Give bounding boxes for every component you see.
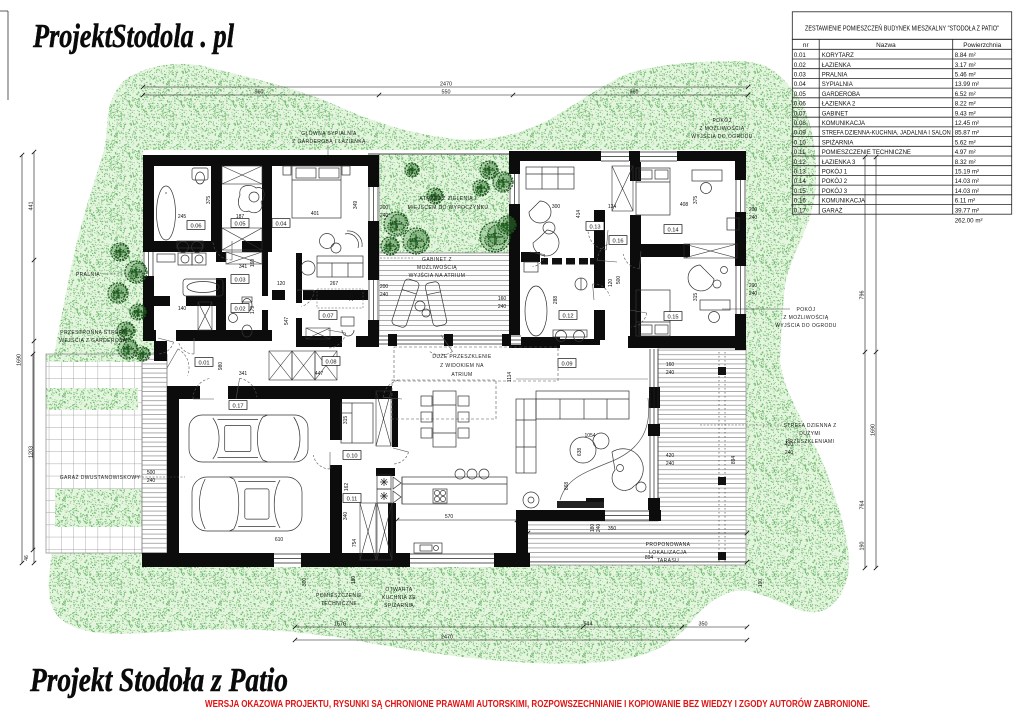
- svg-text:288: 288: [553, 296, 559, 305]
- svg-text:240: 240: [498, 304, 507, 310]
- svg-text:PRALNIA: PRALNIA: [76, 272, 100, 278]
- svg-text:0.10: 0.10: [794, 139, 807, 146]
- svg-text:85.87 m²: 85.87 m²: [955, 130, 979, 137]
- svg-text:638: 638: [577, 448, 583, 457]
- svg-text:500: 500: [616, 276, 622, 285]
- svg-text:0.01: 0.01: [794, 52, 807, 59]
- svg-text:ŁAZIENKA 3: ŁAZIENKA 3: [822, 160, 856, 166]
- svg-text:240: 240: [666, 461, 675, 467]
- svg-text:13.99 m²: 13.99 m²: [955, 81, 979, 88]
- svg-text:ProjektStodola . pl: ProjektStodola . pl: [32, 18, 234, 55]
- svg-text:14.03 m²: 14.03 m²: [955, 188, 979, 195]
- svg-text:2470: 2470: [441, 635, 453, 641]
- svg-text:ŁAZIENKA 2: ŁAZIENKA 2: [822, 102, 856, 108]
- svg-text:POMIESZCZENIE: POMIESZCZENIE: [316, 593, 362, 599]
- svg-text:300: 300: [552, 204, 561, 210]
- svg-text:200: 200: [380, 284, 389, 290]
- svg-text:0.05: 0.05: [234, 221, 245, 227]
- svg-text:267: 267: [330, 281, 339, 287]
- svg-text:8.32 m²: 8.32 m²: [955, 159, 976, 166]
- svg-text:1054: 1054: [584, 433, 595, 439]
- svg-text:DUŻE PRZESZKLENIE: DUŻE PRZESZKLENIE: [432, 353, 492, 360]
- svg-text:0.17: 0.17: [794, 207, 807, 214]
- svg-text:754: 754: [352, 539, 358, 548]
- svg-text:9.43 m²: 9.43 m²: [955, 110, 976, 117]
- svg-text:ATRIUM Z ZIELENIĄ I: ATRIUM Z ZIELENIĄ I: [419, 196, 476, 202]
- svg-text:TECHNICZNE: TECHNICZNE: [321, 601, 357, 607]
- svg-text:PRALNIA: PRALNIA: [822, 73, 848, 79]
- svg-text:MIEJSCEM DO WYPOCZYNKU: MIEJSCEM DO WYPOCZYNKU: [408, 205, 489, 211]
- svg-text:GARAŻ: GARAŻ: [822, 207, 843, 214]
- svg-text:408: 408: [680, 202, 689, 208]
- svg-text:187: 187: [236, 214, 245, 220]
- svg-text:160: 160: [498, 296, 507, 302]
- svg-text:0.04: 0.04: [794, 81, 807, 88]
- svg-text:SPIŻARNIA: SPIŻARNIA: [822, 139, 854, 146]
- svg-text:180: 180: [351, 576, 357, 585]
- svg-text:0.15: 0.15: [794, 188, 807, 195]
- svg-text:Z MOŻLIWOŚCIĄ: Z MOŻLIWOŚCIĄ: [783, 313, 828, 321]
- svg-text:0.01: 0.01: [198, 360, 209, 366]
- svg-text:414: 414: [576, 210, 582, 219]
- svg-text:KUCHNIA ZE: KUCHNIA ZE: [382, 595, 416, 601]
- svg-text:14.03 m²: 14.03 m²: [955, 178, 979, 185]
- svg-text:POMIESZCZENIE TECHNICZNE: POMIESZCZENIE TECHNICZNE: [822, 150, 911, 156]
- svg-text:WYJŚCIA NA ATRIUM: WYJŚCIA NA ATRIUM: [409, 271, 466, 279]
- svg-text:0.04: 0.04: [275, 221, 286, 227]
- svg-text:441: 441: [29, 202, 35, 211]
- svg-text:12.45 m²: 12.45 m²: [955, 120, 979, 127]
- svg-text:WERSJA OKAZOWA PROJEKTU, RYSUN: WERSJA OKAZOWA PROJEKTU, RYSUNKI SĄ CHRO…: [205, 697, 870, 710]
- svg-text:120: 120: [277, 281, 286, 287]
- svg-text:6.11 m²: 6.11 m²: [955, 198, 976, 205]
- svg-text:8.84 m²: 8.84 m²: [955, 52, 976, 59]
- svg-text:1114: 1114: [507, 372, 513, 383]
- svg-text:894: 894: [731, 456, 737, 465]
- svg-text:POKÓJ 3: POKÓJ 3: [822, 188, 848, 195]
- svg-text:350: 350: [608, 526, 617, 532]
- svg-text:401: 401: [311, 211, 320, 217]
- svg-text:0.07: 0.07: [794, 110, 807, 117]
- svg-text:0.15: 0.15: [667, 314, 678, 320]
- svg-text:WYJŚCIA DO OGRODU: WYJŚCIA DO OGRODU: [691, 132, 753, 140]
- svg-text:570: 570: [445, 514, 454, 520]
- svg-text:4.97 m²: 4.97 m²: [955, 149, 976, 156]
- svg-text:200: 200: [380, 205, 389, 211]
- svg-text:0.17: 0.17: [232, 403, 243, 409]
- svg-text:KOMUNIKACJA: KOMUNIKACJA: [822, 199, 865, 205]
- svg-text:SYPIALNIA: SYPIALNIA: [822, 82, 853, 88]
- svg-text:GARDEROBA: GARDEROBA: [822, 92, 860, 98]
- svg-text:PRZESTRONNA STREFA: PRZESTRONNA STREFA: [60, 330, 126, 336]
- svg-text:160: 160: [666, 362, 675, 368]
- svg-text:STREFA DZIENNA Z: STREFA DZIENNA Z: [783, 423, 836, 429]
- svg-text:350: 350: [699, 622, 708, 628]
- svg-text:550: 550: [442, 90, 451, 96]
- svg-text:0.14: 0.14: [667, 227, 678, 233]
- svg-text:39.77 m²: 39.77 m²: [955, 207, 979, 214]
- svg-text:0.11: 0.11: [347, 496, 358, 502]
- svg-text:0.03: 0.03: [234, 277, 245, 283]
- svg-text:LOKALIZACJA: LOKALIZACJA: [649, 550, 687, 556]
- svg-text:2470: 2470: [440, 82, 452, 88]
- svg-text:420: 420: [666, 453, 675, 459]
- svg-text:262.00 m²: 262.00 m²: [955, 218, 983, 225]
- svg-text:0.12: 0.12: [562, 313, 573, 319]
- svg-text:375: 375: [693, 196, 699, 205]
- svg-text:Powierzchnia: Powierzchnia: [963, 42, 1001, 49]
- svg-text:Nazwa: Nazwa: [876, 42, 896, 49]
- svg-text:764: 764: [860, 501, 866, 510]
- svg-text:0.02: 0.02: [794, 62, 807, 69]
- svg-text:0.10: 0.10: [346, 453, 357, 459]
- svg-text:POKÓJ: POKÓJ: [713, 117, 732, 124]
- svg-text:315: 315: [693, 293, 699, 302]
- svg-text:980: 980: [218, 362, 224, 371]
- svg-text:544: 544: [584, 622, 593, 628]
- svg-text:1203: 1203: [29, 446, 35, 458]
- svg-text:WEJŚCIA Z GARDEROBĄ: WEJŚCIA Z GARDEROBĄ: [59, 336, 127, 344]
- svg-text:WYJŚCIA DO OGRODU: WYJŚCIA DO OGRODU: [775, 321, 837, 329]
- svg-text:46: 46: [24, 555, 30, 561]
- svg-text:5.62 m²: 5.62 m²: [955, 139, 976, 146]
- svg-text:KORYTARZ: KORYTARZ: [822, 53, 854, 59]
- svg-text:610: 610: [275, 537, 284, 543]
- svg-text:0.06: 0.06: [794, 101, 807, 108]
- svg-text:960: 960: [630, 90, 639, 96]
- svg-text:375: 375: [206, 196, 212, 205]
- svg-text:Z WIDOKIEM NA: Z WIDOKIEM NA: [440, 363, 484, 369]
- svg-text:341: 341: [239, 371, 248, 377]
- svg-text:240: 240: [147, 478, 156, 484]
- svg-text:315: 315: [343, 416, 349, 425]
- svg-text:0.13: 0.13: [794, 169, 807, 176]
- svg-text:500: 500: [147, 470, 156, 476]
- svg-text:ZESTAWIENIE POMIESZCZEŃ BUDYNE: ZESTAWIENIE POMIESZCZEŃ BUDYNEK MIESZKAL…: [805, 24, 999, 33]
- svg-text:134: 134: [608, 204, 617, 210]
- svg-text:nr: nr: [803, 42, 810, 49]
- svg-text:179: 179: [250, 306, 256, 315]
- svg-text:GABINET: GABINET: [822, 111, 849, 117]
- svg-text:796: 796: [860, 291, 866, 300]
- svg-text:200: 200: [749, 207, 758, 213]
- svg-text:Z MOŻLIWOŚCIĄ: Z MOŻLIWOŚCIĄ: [699, 124, 744, 132]
- svg-text:OTWARTA: OTWARTA: [385, 587, 412, 593]
- svg-text:547: 547: [284, 317, 290, 326]
- svg-text:1690: 1690: [17, 354, 23, 366]
- svg-text:PROPONOWANA: PROPONOWANA: [646, 542, 691, 548]
- svg-text:894: 894: [645, 555, 654, 561]
- svg-text:GŁÓWNA SYPIALNIA: GŁÓWNA SYPIALNIA: [301, 130, 357, 137]
- svg-text:240: 240: [749, 291, 758, 297]
- svg-text:240: 240: [596, 524, 602, 533]
- svg-text:0.09: 0.09: [794, 130, 807, 137]
- svg-text:3.17 m²: 3.17 m²: [955, 62, 976, 69]
- svg-text:0.13: 0.13: [589, 224, 600, 230]
- svg-text:349: 349: [353, 201, 359, 210]
- svg-text:SPIŻARNIĄ: SPIŻARNIĄ: [384, 602, 414, 609]
- svg-text:1690: 1690: [871, 424, 877, 436]
- svg-text:240: 240: [380, 292, 389, 298]
- svg-text:420: 420: [785, 442, 794, 448]
- svg-text:190: 190: [860, 542, 866, 551]
- svg-text:GABINET Z: GABINET Z: [422, 257, 452, 263]
- svg-text:1576: 1576: [334, 622, 346, 628]
- svg-text:15.19 m²: 15.19 m²: [955, 169, 979, 176]
- svg-text:0.05: 0.05: [794, 91, 807, 98]
- svg-text:0.14: 0.14: [794, 178, 807, 185]
- svg-text:341: 341: [239, 264, 248, 270]
- svg-text:0.08: 0.08: [794, 120, 807, 127]
- svg-text:0.02: 0.02: [234, 306, 245, 312]
- svg-text:ATRIUM: ATRIUM: [451, 372, 472, 378]
- svg-text:120: 120: [608, 279, 614, 288]
- svg-text:KOMUNIKACJA: KOMUNIKACJA: [822, 121, 865, 127]
- svg-text:960: 960: [255, 90, 264, 96]
- svg-text:300: 300: [302, 578, 308, 587]
- svg-text:TARASU: TARASU: [657, 558, 679, 564]
- svg-text:340: 340: [343, 512, 349, 521]
- svg-text:8.22 m²: 8.22 m²: [955, 101, 976, 108]
- svg-text:160: 160: [250, 259, 256, 268]
- svg-text:0.09: 0.09: [561, 361, 572, 367]
- svg-text:447: 447: [315, 371, 324, 377]
- svg-text:POKÓJ: POKÓJ: [797, 306, 816, 313]
- svg-text:240: 240: [749, 215, 758, 221]
- svg-text:MOŻLIWOŚCIĄ: MOŻLIWOŚCIĄ: [417, 263, 457, 271]
- svg-text:200: 200: [749, 283, 758, 289]
- svg-text:162: 162: [344, 483, 350, 492]
- svg-text:240: 240: [666, 370, 675, 376]
- svg-text:ŁAZIENKA: ŁAZIENKA: [822, 63, 851, 69]
- svg-text:STREFA DZIENNA-KUCHNIA, JADALN: STREFA DZIENNA-KUCHNIA, JADALNIA I SALON: [822, 131, 951, 137]
- svg-text:868: 868: [564, 482, 570, 491]
- svg-text:DUŻYMI: DUŻYMI: [799, 430, 821, 437]
- svg-text:240: 240: [380, 213, 389, 219]
- svg-text:0.11: 0.11: [794, 149, 806, 156]
- svg-text:POKÓJ 1: POKÓJ 1: [822, 169, 848, 176]
- svg-text:0.03: 0.03: [794, 72, 807, 79]
- svg-text:GARAŻ DWUSTANOWISKOWY: GARAŻ DWUSTANOWISKOWY: [60, 474, 141, 481]
- svg-text:POKÓJ 2: POKÓJ 2: [822, 178, 848, 185]
- svg-text:5.46 m²: 5.46 m²: [955, 72, 976, 79]
- svg-text:353: 353: [349, 293, 355, 302]
- svg-text:0.16: 0.16: [794, 198, 807, 205]
- svg-text:245: 245: [178, 214, 187, 220]
- svg-text:240: 240: [785, 450, 794, 456]
- svg-text:0.07: 0.07: [322, 313, 333, 319]
- svg-text:0.16: 0.16: [612, 238, 623, 244]
- svg-text:0.08: 0.08: [325, 359, 336, 365]
- svg-text:6.52 m²: 6.52 m²: [955, 91, 976, 98]
- svg-text:140: 140: [178, 306, 187, 312]
- svg-text:Projekt Stodoła z Patio: Projekt Stodoła z Patio: [29, 662, 288, 699]
- svg-text:0.12: 0.12: [794, 159, 807, 166]
- svg-text:Z GARDEROBĄ I ŁAZIENKĄ: Z GARDEROBĄ I ŁAZIENKĄ: [292, 139, 366, 145]
- svg-text:0.06: 0.06: [190, 223, 201, 229]
- svg-text:190: 190: [758, 579, 764, 588]
